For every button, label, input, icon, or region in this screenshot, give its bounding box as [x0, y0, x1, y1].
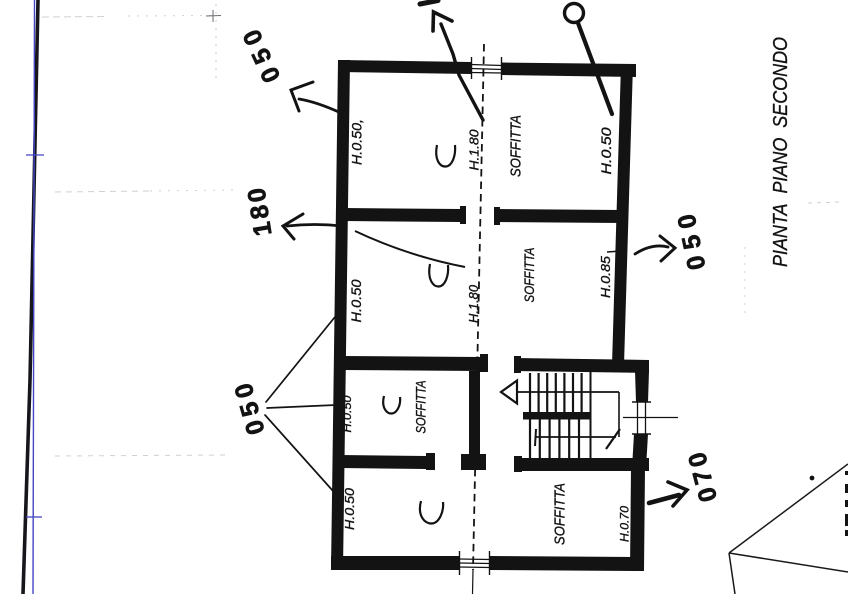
- svg-text:H.0.50: H.0.50: [342, 487, 357, 530]
- svg-text:H.1.80: H.1.80: [467, 285, 481, 323]
- svg-text:H.0.85: H.0.85: [599, 256, 613, 298]
- svg-text:PIANTA PIANO SECONDO: PIANTA PIANO SECONDO: [770, 37, 792, 267]
- svg-text:H.1.80: H.1.80: [467, 129, 482, 171]
- svg-text:H.0.50: H.0.50: [340, 395, 354, 432]
- svg-text:H.0.50,: H.0.50,: [349, 119, 365, 165]
- svg-text:SOFFITTA: SOFFITTA: [414, 381, 429, 434]
- svg-text:050: 050: [672, 212, 711, 273]
- svg-text:H.0.70: H.0.70: [618, 506, 632, 542]
- svg-text:H.0.50: H.0.50: [349, 279, 364, 323]
- svg-text:070: 070: [683, 449, 723, 505]
- svg-text:050: 050: [238, 25, 287, 87]
- svg-text:180: 180: [242, 186, 277, 238]
- svg-text:SOFFITTA: SOFFITTA: [552, 483, 569, 545]
- svg-text:H.0.50: H.0.50: [599, 127, 614, 175]
- svg-text:SOFFITTA: SOFFITTA: [508, 115, 525, 177]
- svg-text:050: 050: [229, 380, 270, 438]
- svg-text:SOFFITTA: SOFFITTA: [521, 248, 537, 303]
